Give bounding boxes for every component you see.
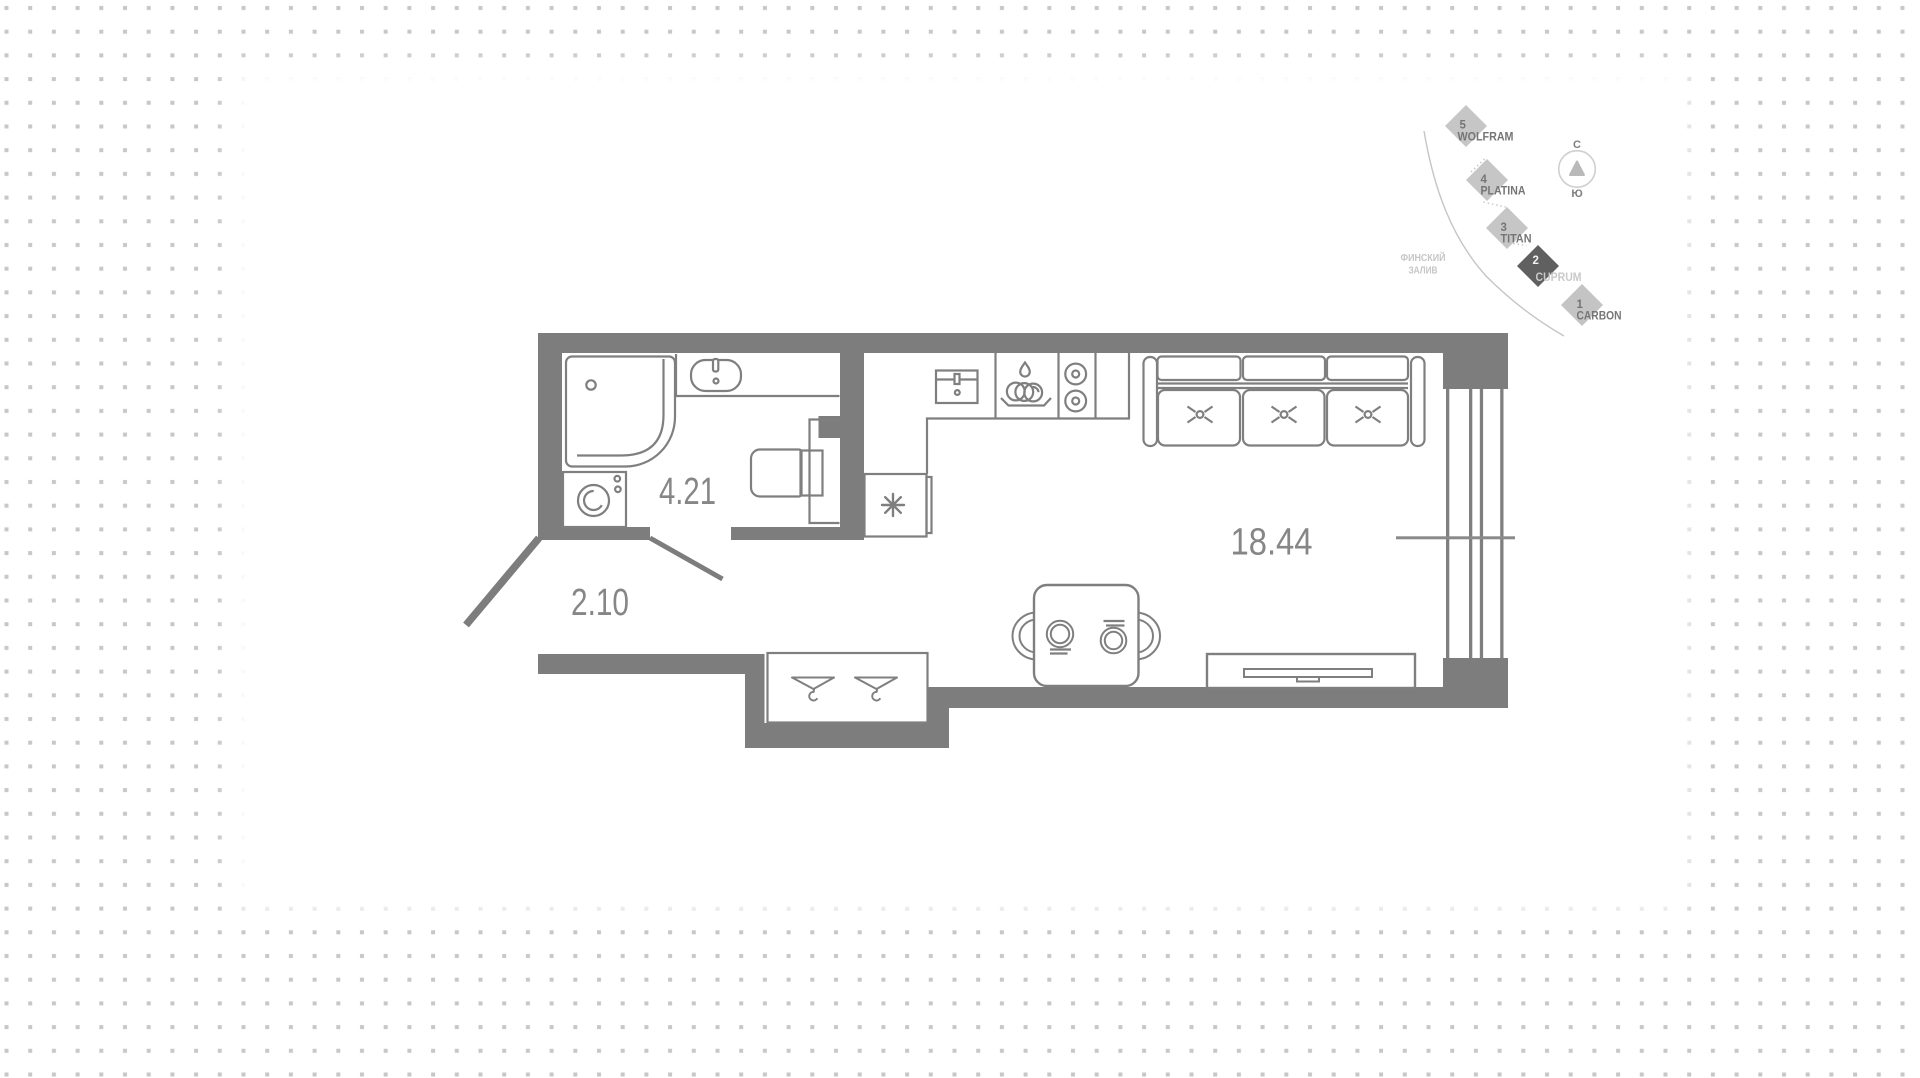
svg-text:С: С (1573, 139, 1581, 151)
svg-text:CARBON: CARBON (1577, 311, 1622, 323)
svg-text:5: 5 (1460, 120, 1467, 132)
svg-text:CUPRUM: CUPRUM (1536, 272, 1582, 284)
svg-text:WOLFRAM: WOLFRAM (1458, 132, 1514, 144)
svg-text:2.10: 2.10 (571, 582, 629, 624)
svg-text:4.21: 4.21 (659, 471, 716, 513)
svg-text:Ю: Ю (1571, 188, 1582, 200)
svg-text:2: 2 (1533, 255, 1540, 267)
svg-text:18.44: 18.44 (1231, 522, 1313, 564)
svg-text:TITAN: TITAN (1501, 234, 1532, 246)
svg-text:ЗАЛИВ: ЗАЛИВ (1409, 265, 1438, 277)
svg-text:3: 3 (1501, 222, 1508, 234)
svg-text:ФИНСКИЙ: ФИНСКИЙ (1401, 251, 1446, 264)
svg-text:1: 1 (1577, 299, 1584, 311)
svg-text:4: 4 (1481, 174, 1488, 186)
svg-text:PLATINA: PLATINA (1481, 186, 1526, 198)
